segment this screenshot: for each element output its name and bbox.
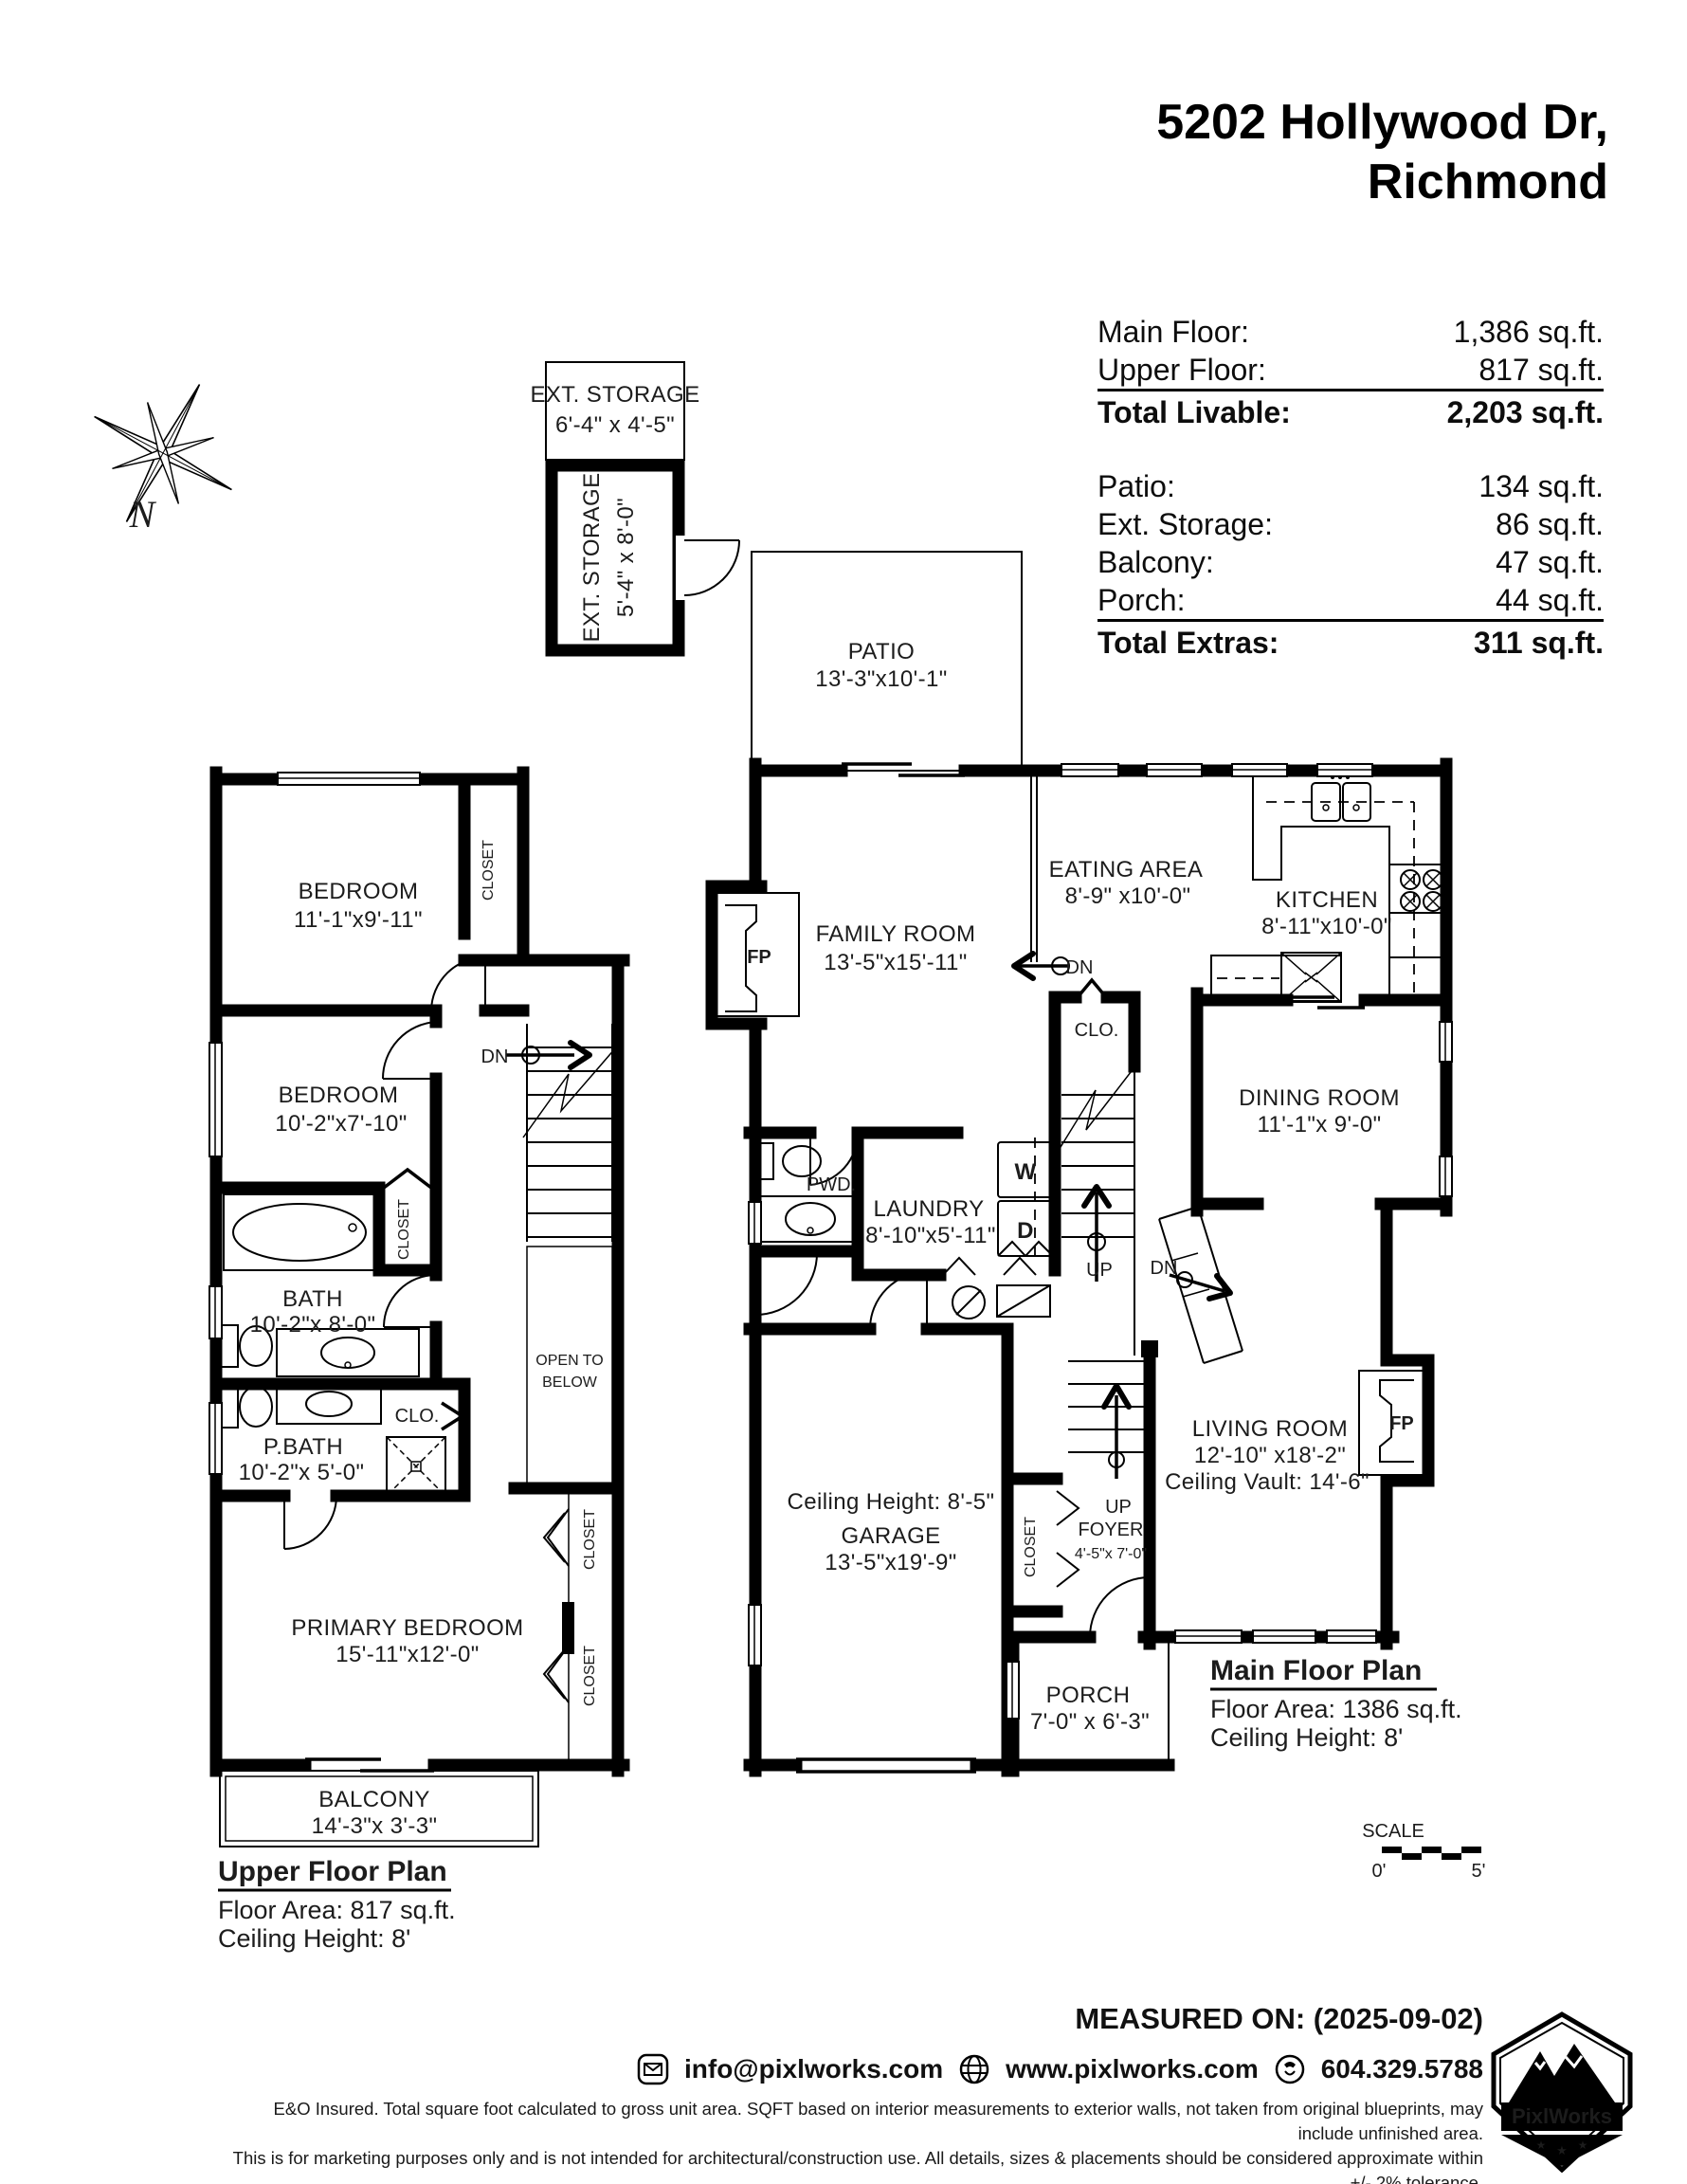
stairs-dn-label: DN [1151, 1258, 1178, 1279]
contact-row: info@pixlworks.com www.pixlworks.com 604… [637, 2053, 1483, 2085]
room-label: EATING AREA [1049, 857, 1204, 883]
room-dims: 13'-5"x15'-11" [824, 950, 967, 975]
room-dims: 12'-10" x18'-2" [1194, 1443, 1346, 1468]
main-plan-area: Floor Area: 1386 sq.ft. [1210, 1695, 1462, 1723]
email-icon [637, 2053, 669, 2085]
logo-star: ★ [1536, 2138, 1547, 2152]
upper-plan-area: Floor Area: 817 sq.ft. [218, 1896, 456, 1924]
main-floor-plan: FP DN CLO. UP [712, 552, 1462, 1772]
upper-plan-title: Upper Floor Plan [218, 1856, 447, 1887]
room-label: BALCONY [318, 1787, 430, 1812]
water-heater-icon [952, 1286, 985, 1319]
phone-icon [1274, 2053, 1306, 2085]
room-label: BEDROOM [299, 879, 419, 904]
scale-start: 0' [1372, 1861, 1387, 1882]
room-label: PATIO [848, 639, 915, 664]
room-label: FOYER [1079, 1520, 1144, 1540]
stairs-dn-label: DN [481, 1046, 509, 1067]
closet-label: CLOSET [481, 840, 497, 901]
stairs-dn-label: DN [1066, 957, 1094, 978]
bifold-door-icon [1057, 1491, 1079, 1587]
basement-stair-diagonal [1159, 1207, 1243, 1363]
measured-on: MEASURED ON: (2025-09-02) [1075, 2002, 1483, 2036]
room-label: PORCH [1046, 1683, 1131, 1708]
scale-label: SCALE [1362, 1821, 1424, 1842]
room-dims: 10'-2"x7'-10" [275, 1111, 407, 1137]
room-dims: 11'-1"x 9'-0" [1257, 1112, 1381, 1137]
bathtub-icon [224, 1194, 375, 1270]
room-label: EXT. STORAGE [530, 382, 699, 408]
open-to-below-label: BELOW [542, 1374, 598, 1391]
primary-closets [544, 1494, 574, 1765]
room-label: FAMILY ROOM [816, 921, 976, 947]
room-note: Ceiling Height: 8'-5" [788, 1489, 995, 1515]
room-dims: 8'-10"x5'-11" [865, 1223, 996, 1248]
room-label: BEDROOM [279, 1083, 399, 1108]
dn-arrow-eating [1014, 954, 1069, 978]
upper-plan-ceiling: Ceiling Height: 8' [218, 1924, 410, 1953]
disclaimer: E&O Insured. Total square foot calculate… [213, 2097, 1483, 2184]
clo-door-icon [1078, 980, 1106, 997]
foyer-staircase [1068, 1361, 1144, 1479]
closet-label: CLOSET [582, 1646, 598, 1706]
room-label: LAUNDRY [873, 1196, 984, 1222]
phone-text: 604.329.5788 [1321, 2054, 1483, 2084]
room-dims: 10'-2"x 8'-0" [250, 1312, 376, 1338]
main-plan-ceiling: Ceiling Height: 8' [1210, 1723, 1403, 1752]
room-dims: 8'-9" x10'-0" [1065, 883, 1191, 909]
logo-text: PixlWorks [1512, 2104, 1612, 2128]
room-label: PRIMARY BEDROOM [291, 1615, 523, 1641]
shower-icon [387, 1437, 445, 1496]
furnace-icon [997, 1285, 1050, 1317]
email-text: info@pixlworks.com [684, 2054, 943, 2084]
room-note: Ceiling Vault: 14'-6" [1165, 1469, 1370, 1495]
room-dims: 7'-0" x 6'-3" [1030, 1709, 1150, 1735]
room-label: GARAGE [841, 1523, 940, 1549]
closet-label: CLOSET [396, 1199, 412, 1260]
room-label: EXT. STORAGE [579, 472, 605, 642]
room-dims: 14'-3"x 3'-3" [312, 1813, 438, 1839]
room-dims: 5'-4" x 8'-0" [613, 498, 639, 617]
open-to-below-label: OPEN TO [535, 1353, 603, 1369]
main-staircase [1058, 1064, 1137, 1356]
washer-label: W [1014, 1159, 1036, 1185]
scale-end: 5' [1472, 1861, 1486, 1882]
room-label: KITCHEN [1276, 887, 1378, 913]
compass-north-label: N [129, 493, 157, 536]
floorplan-drawing: N EXT. STORAGE 6'-4" x 4'-5" EXT. STORAG… [0, 0, 1687, 2184]
room-dims: 10'-2"x 5'-0" [239, 1460, 365, 1485]
ext-storage-plan: EXT. STORAGE 6'-4" x 4'-5" EXT. STORAGE … [530, 362, 739, 650]
disclaimer-line2: This is for marketing purposes only and … [213, 2146, 1483, 2184]
closet-label: CLOSET [582, 1509, 598, 1570]
closet-label: CLOSET [1023, 1517, 1039, 1577]
website-icon [958, 2053, 990, 2085]
room-dims: 8'-11"x10'-0" [1261, 914, 1392, 939]
disclaimer-line1: E&O Insured. Total square foot calculate… [213, 2097, 1483, 2146]
room-dims: 15'-11"x12'-0" [336, 1642, 479, 1667]
clo-label: CLO. [395, 1406, 440, 1427]
clo-label: CLO. [1075, 1020, 1119, 1041]
upper-floor-plan: DN OPEN TO BELOW [209, 773, 624, 1953]
room-dims: 11'-1"x9'-11" [294, 907, 423, 933]
pwd-vanity-icon [758, 1196, 862, 1242]
main-plan-title: Main Floor Plan [1210, 1655, 1422, 1686]
garage-door-icon [796, 1759, 976, 1772]
sliding-door-icon [305, 1759, 434, 1771]
room-dims: 13'-5"x19'-9" [825, 1550, 956, 1575]
stairs-up-label: UP [1086, 1260, 1113, 1281]
fireplace-label: FP [747, 947, 771, 968]
room-dims: 6'-4" x 4'-5" [555, 412, 675, 438]
room-label: PWD. [807, 1174, 856, 1195]
room-label: P.BATH [263, 1434, 343, 1460]
logo-star: ★ [1578, 2138, 1588, 2152]
bifold-door-icon [943, 1258, 1036, 1275]
room-label: BATH [282, 1286, 343, 1312]
upper-staircase [506, 1024, 616, 1242]
pixlworks-logo: PixlWorks ★ ★ ★ [1490, 2011, 1634, 2177]
kitchen-sink-icon [1312, 775, 1370, 821]
stairs-up-label: UP [1105, 1497, 1132, 1518]
room-dims: 13'-3"x10'-1" [815, 666, 947, 692]
compass-rose-icon: N [58, 348, 268, 558]
fireplace-label: FP [1389, 1413, 1414, 1434]
floorplan-page: 5202 Hollywood Dr, Richmond Main Floor: … [0, 0, 1687, 2184]
room-label: LIVING ROOM [1192, 1416, 1348, 1442]
toilet-icon [221, 1386, 272, 1428]
scale-bar: SCALE 0' 5' [1362, 1821, 1485, 1882]
dryer-label: D [1017, 1218, 1034, 1244]
stove-icon [1401, 870, 1442, 911]
room-dims: 4'-5"x 7'-0" [1075, 1546, 1147, 1562]
room-label: DINING ROOM [1239, 1085, 1400, 1111]
logo-star: ★ [1556, 2143, 1568, 2157]
website-text: www.pixlworks.com [1006, 2054, 1259, 2084]
